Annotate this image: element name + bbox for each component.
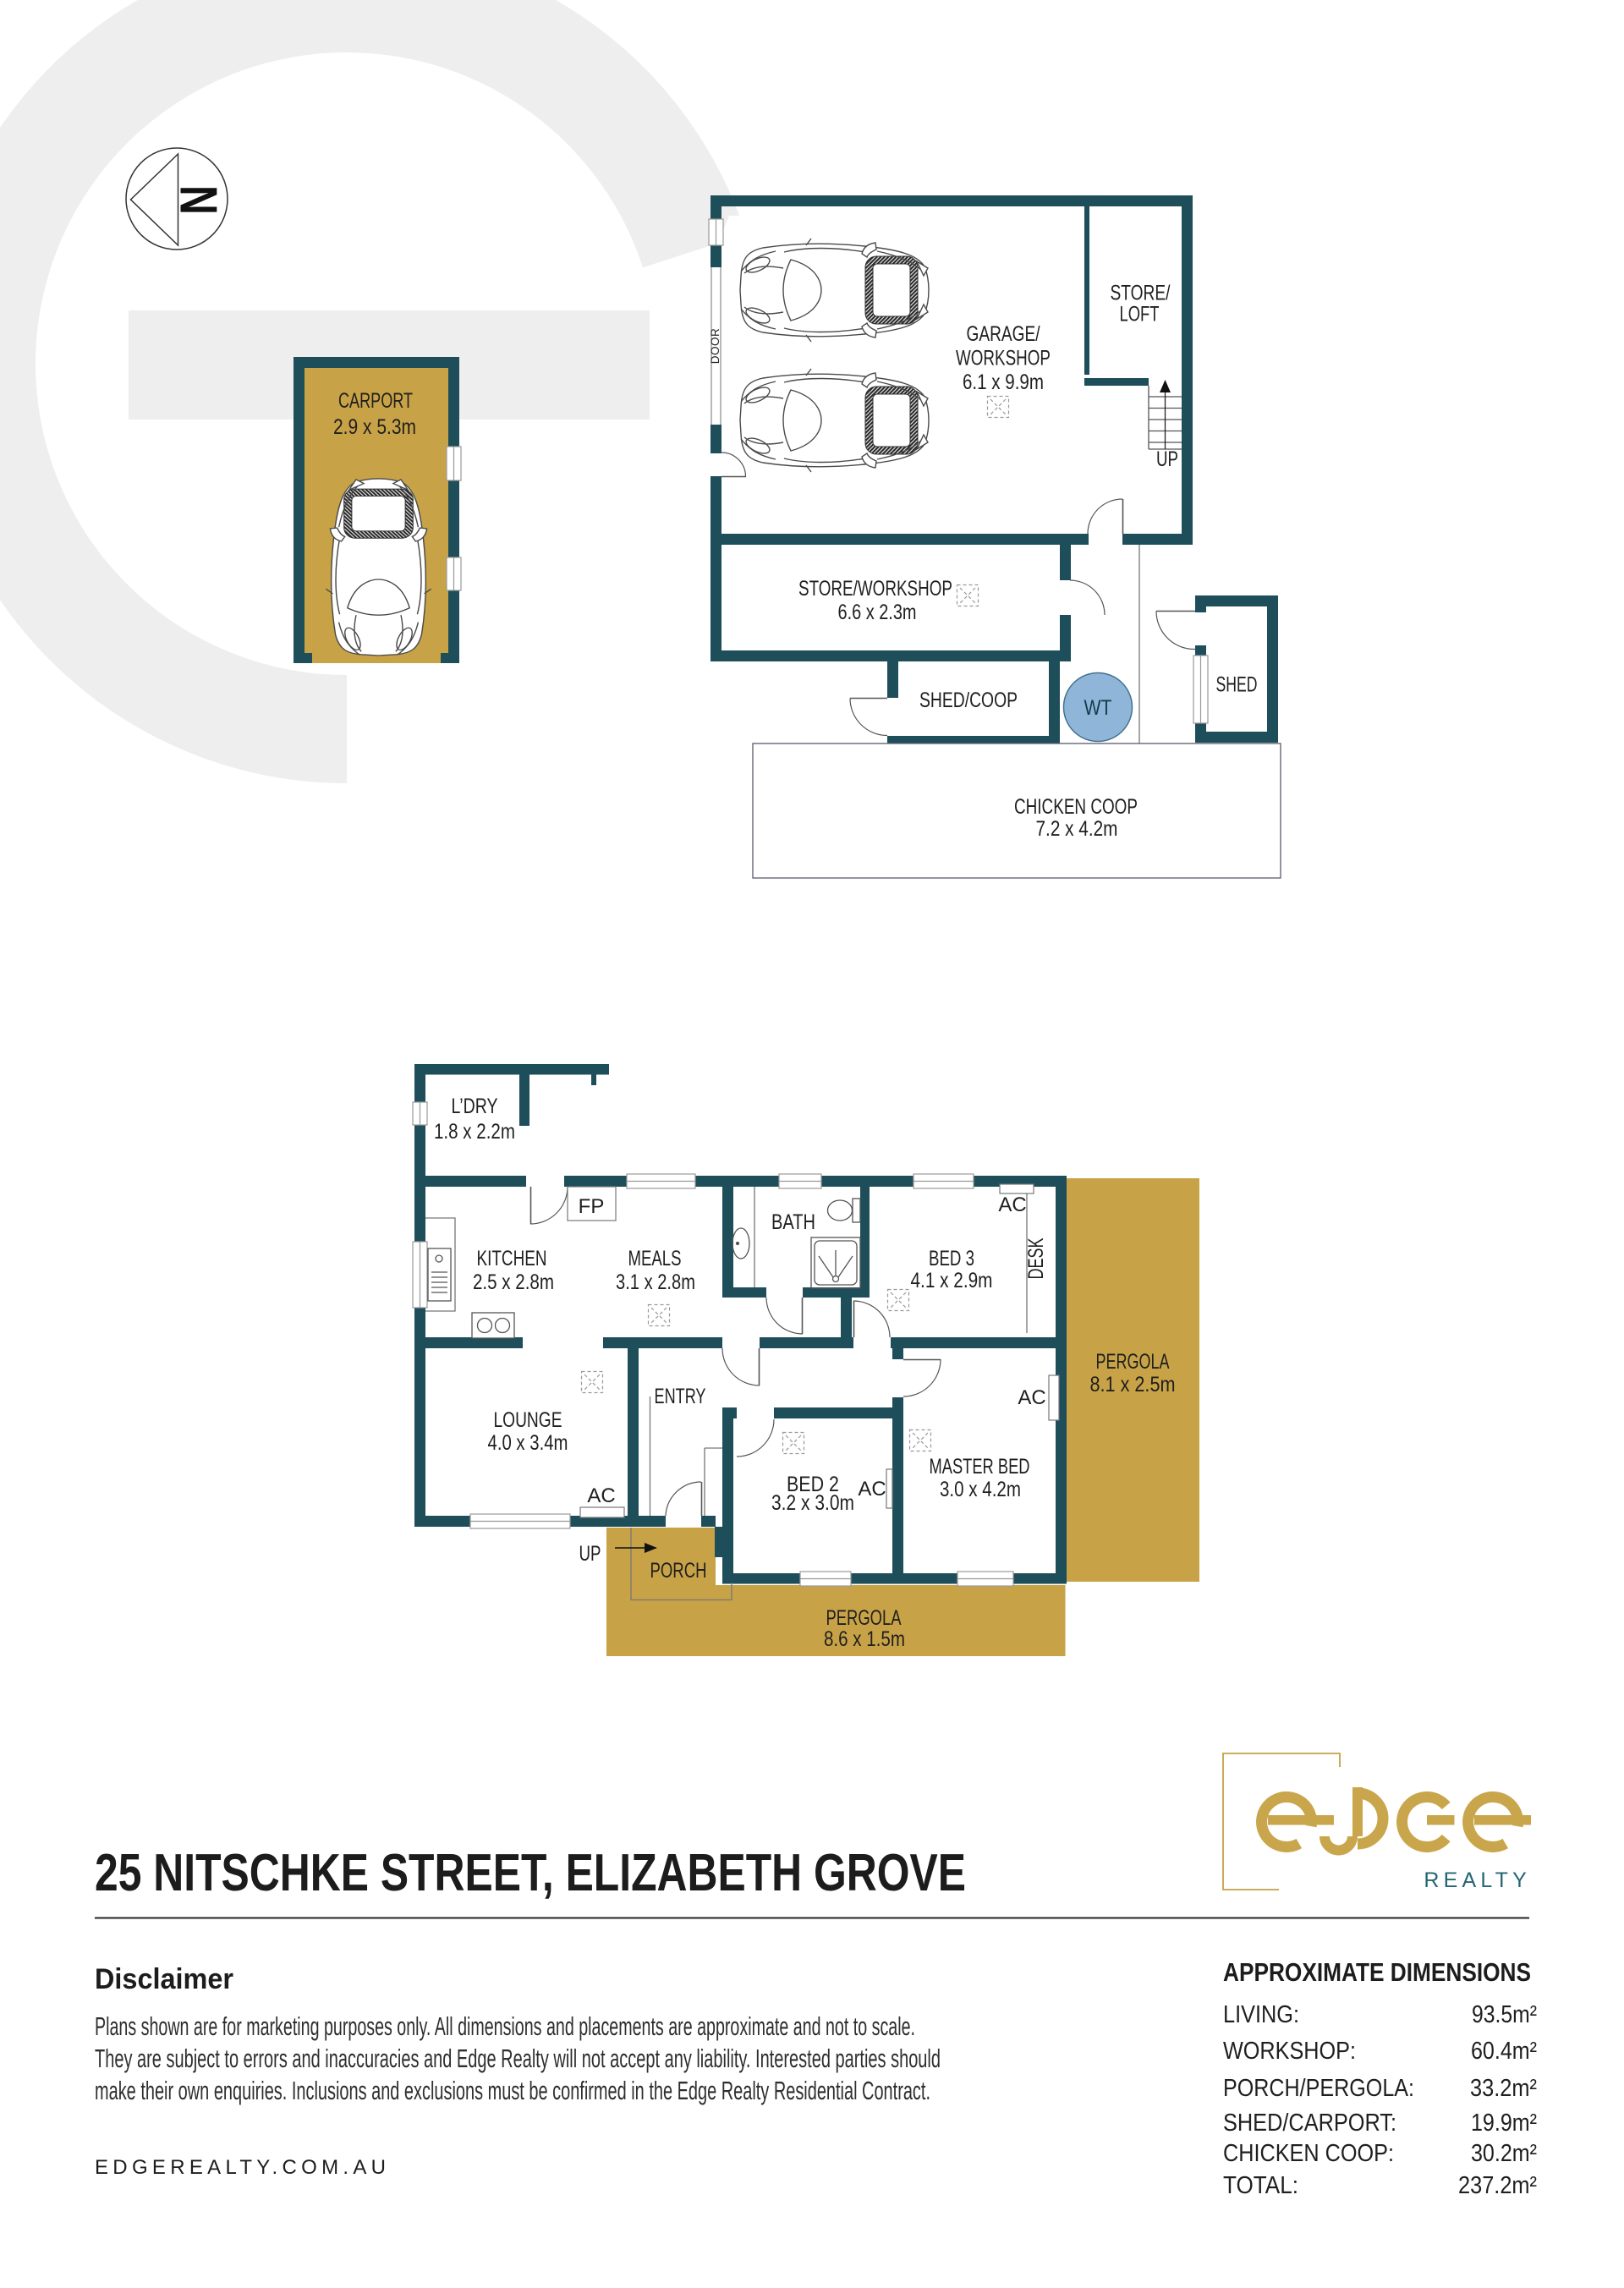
svg-text:STORE/: STORE/ (1111, 282, 1171, 305)
svg-text:WORKSHOP: WORKSHOP (956, 347, 1051, 370)
svg-text:AC: AC (998, 1193, 1026, 1216)
svg-text:MASTER BED: MASTER BED (930, 1455, 1030, 1479)
svg-text:25 NITSCHKE STREET, ELIZABETH: 25 NITSCHKE STREET, ELIZABETH GROVE (95, 1844, 966, 1902)
svg-text:2.5 x 2.8m: 2.5 x 2.8m (473, 1270, 554, 1294)
svg-text:LOUNGE: LOUNGE (494, 1408, 562, 1432)
svg-text:6.6 x 2.3m: 6.6 x 2.3m (838, 601, 917, 624)
svg-text:STORE/WORKSHOP: STORE/WORKSHOP (798, 577, 952, 601)
svg-text:L’DRY: L’DRY (452, 1095, 498, 1118)
svg-text:TOTAL:: TOTAL: (1223, 2172, 1298, 2199)
svg-text:EDGEREALTY.COM.AU: EDGEREALTY.COM.AU (95, 2156, 390, 2179)
svg-text:WORKSHOP:: WORKSHOP: (1223, 2038, 1356, 2065)
svg-text:PORCH: PORCH (650, 1559, 707, 1583)
svg-text:SHED/CARPORT:: SHED/CARPORT: (1223, 2110, 1396, 2137)
svg-text:8.6 x 1.5m: 8.6 x 1.5m (824, 1627, 905, 1651)
svg-text:ENTRY: ENTRY (655, 1385, 706, 1408)
svg-text:AC: AC (1018, 1386, 1045, 1409)
svg-text:CHICKEN COOP: CHICKEN COOP (1014, 795, 1138, 819)
svg-text:AC: AC (587, 1484, 615, 1507)
svg-text:LIVING:: LIVING: (1223, 2001, 1299, 2028)
svg-text:PERGOLA: PERGOLA (1096, 1350, 1170, 1374)
svg-text:PERGOLA: PERGOLA (826, 1606, 902, 1630)
svg-text:SHED/COOP: SHED/COOP (919, 689, 1018, 712)
svg-text:237.2m²: 237.2m² (1458, 2172, 1537, 2199)
svg-text:APPROXIMATE DIMENSIONS: APPROXIMATE DIMENSIONS (1223, 1957, 1531, 1987)
svg-text:8.1 x 2.5m: 8.1 x 2.5m (1090, 1373, 1176, 1396)
svg-text:33.2m²: 33.2m² (1470, 2075, 1537, 2102)
svg-text:LOFT: LOFT (1120, 303, 1160, 326)
svg-text:GARAGE/: GARAGE/ (967, 322, 1040, 346)
svg-text:30.2m²: 30.2m² (1471, 2140, 1537, 2167)
svg-text:60.4m²: 60.4m² (1471, 2038, 1537, 2065)
svg-text:4.1 x 2.9m: 4.1 x 2.9m (911, 1269, 993, 1292)
svg-text:UP: UP (1156, 447, 1178, 471)
svg-text:Disclaimer: Disclaimer (95, 1963, 233, 1995)
svg-text:make their own enquiries. Incl: make their own enquiries. Inclusions and… (95, 2076, 930, 2105)
svg-text:CHICKEN COOP:: CHICKEN COOP: (1223, 2140, 1394, 2167)
svg-text:They are subject to errors and: They are subject to errors and inaccurac… (95, 2044, 941, 2073)
svg-text:MEALS: MEALS (628, 1247, 682, 1270)
svg-text:UP: UP (579, 1542, 601, 1566)
svg-text:7.2 x 4.2m: 7.2 x 4.2m (1036, 817, 1118, 841)
svg-text:19.9m²: 19.9m² (1471, 2110, 1537, 2137)
svg-text:BED 3: BED 3 (929, 1247, 974, 1270)
svg-text:BATH: BATH (771, 1210, 815, 1234)
svg-text:93.5m²: 93.5m² (1472, 2001, 1537, 2028)
svg-text:AC: AC (858, 1478, 886, 1501)
svg-text:KITCHEN: KITCHEN (477, 1247, 547, 1270)
svg-text:Plans shown are for marketing: Plans shown are for marketing purposes o… (95, 2011, 915, 2041)
svg-text:N: N (169, 185, 228, 215)
svg-text:6.1 x 9.9m: 6.1 x 9.9m (963, 370, 1044, 394)
svg-text:1.8 x 2.2m: 1.8 x 2.2m (434, 1120, 515, 1144)
svg-text:FP: FP (579, 1195, 605, 1218)
svg-text:4.0 x 3.4m: 4.0 x 3.4m (488, 1431, 568, 1455)
svg-text:2.9 x 5.3m: 2.9 x 5.3m (333, 415, 416, 439)
svg-text:REALTY: REALTY (1424, 1868, 1531, 1892)
svg-text:SHED: SHED (1216, 673, 1258, 697)
svg-text:DESK: DESK (1024, 1237, 1048, 1279)
svg-text:3.0 x 4.2m: 3.0 x 4.2m (940, 1478, 1021, 1501)
svg-text:DOOR: DOOR (709, 328, 721, 365)
svg-text:PORCH/PERGOLA:: PORCH/PERGOLA: (1223, 2075, 1414, 2102)
svg-text:3.2 x 3.0m: 3.2 x 3.0m (771, 1491, 854, 1515)
svg-text:3.1 x 2.8m: 3.1 x 2.8m (616, 1270, 695, 1294)
svg-text:CARPORT: CARPORT (338, 389, 413, 413)
svg-text:WT: WT (1084, 696, 1112, 720)
